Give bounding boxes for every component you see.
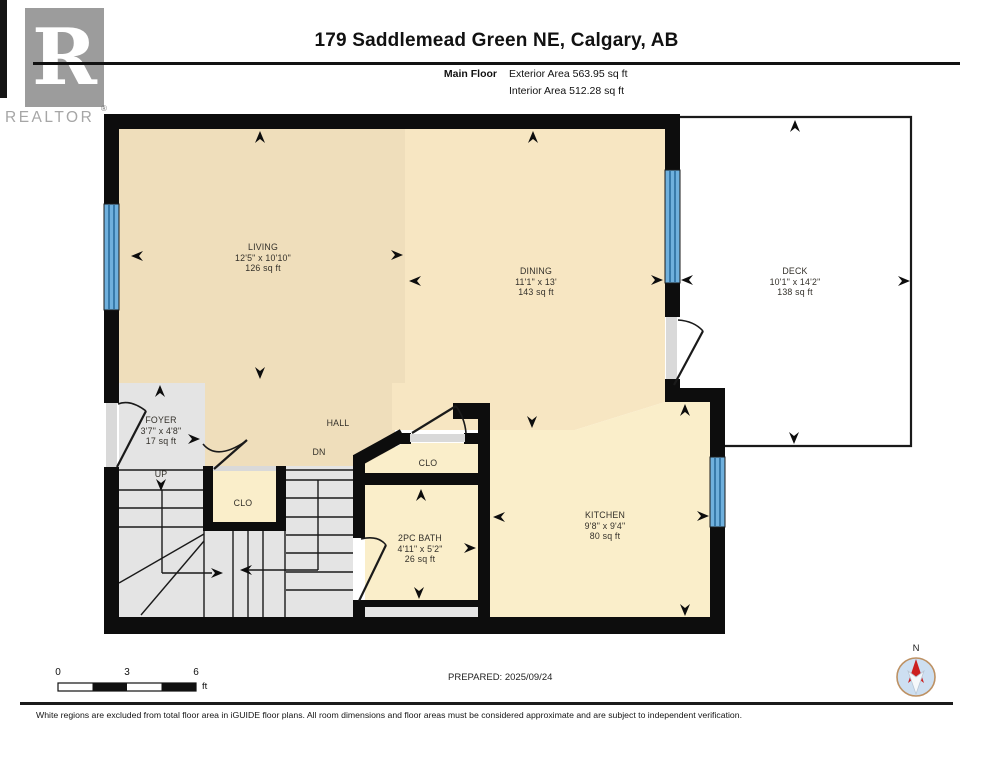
scale-unit-label: ft xyxy=(202,681,207,692)
floor-plan-page: R 179 Saddlemead Green NE, Calgary, AB R… xyxy=(0,0,993,768)
realtor-logo-letter: R xyxy=(32,19,97,97)
scale-tick-0: 0 xyxy=(55,667,61,678)
closet2-door-sill xyxy=(410,434,465,442)
room-label-living: LIVING 12'5" x 10'10" 126 sq ft xyxy=(235,242,291,274)
title-divider xyxy=(33,62,960,65)
compass-north-label: N xyxy=(913,643,920,654)
arrow-left xyxy=(681,275,693,285)
disclaimer-text: White regions are excluded from total fl… xyxy=(36,710,742,720)
arrow-up xyxy=(790,120,800,132)
room-label-closet1: CLO xyxy=(234,498,253,509)
living-window xyxy=(104,204,119,310)
room-label-hall: HALL xyxy=(327,418,350,429)
scale-tick-6: 6 xyxy=(193,667,199,678)
page-edge-bar xyxy=(0,0,7,98)
deck-door-sill xyxy=(666,317,677,379)
stairs-up-label: UP xyxy=(155,469,168,480)
footer-divider xyxy=(20,702,953,705)
closet1-door-sill xyxy=(213,466,276,471)
closet1-floor xyxy=(213,470,276,522)
room-label-foyer: FOYER 3'7" x 4'8" 17 sq ft xyxy=(141,415,182,447)
room-label-deck: DECK 10'1" x 14'2" 138 sq ft xyxy=(770,266,821,298)
entry-door-sill xyxy=(106,403,117,467)
kitchen-window xyxy=(710,457,725,527)
deck-door-swing xyxy=(678,320,703,331)
prepared-date-label: PREPARED: 2025/09/24 xyxy=(448,672,552,683)
exterior-area-label: Exterior Area 563.95 sq ft xyxy=(509,68,627,80)
room-label-kitchen: KITCHEN 9'8" x 9'4" 80 sq ft xyxy=(585,510,626,542)
registered-mark-icon: ® xyxy=(101,104,107,113)
compass-icon xyxy=(897,658,935,696)
room-label-closet2: CLO xyxy=(419,458,438,469)
bath-landing-strip xyxy=(365,607,478,617)
floor-plan-drawing xyxy=(0,0,993,768)
scale-bar xyxy=(58,683,196,691)
deck-door-leaf xyxy=(674,331,703,385)
page-title: 179 Saddlemead Green NE, Calgary, AB xyxy=(314,30,678,52)
floor-name-label: Main Floor xyxy=(444,68,497,80)
realtor-logo: R xyxy=(25,8,104,107)
stairs-down-label: DN xyxy=(312,447,325,458)
arrow-right xyxy=(898,276,910,286)
realtor-logo-text: REALTOR xyxy=(5,109,105,127)
room-label-bath: 2PC BATH 4'11" x 5'2" 26 sq ft xyxy=(397,533,442,565)
arrow-down xyxy=(789,432,799,444)
room-label-dining: DINING 11'1" x 13' 143 sq ft xyxy=(515,266,557,298)
interior-area-label: Interior Area 512.28 sq ft xyxy=(509,85,624,97)
dining-window xyxy=(665,170,680,283)
scale-tick-3: 3 xyxy=(124,667,130,678)
